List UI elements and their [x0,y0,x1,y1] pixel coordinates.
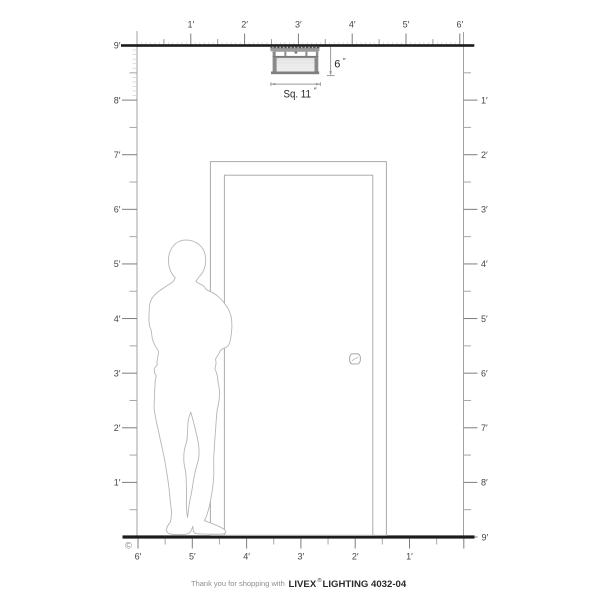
svg-text:9′: 9′ [482,533,489,543]
svg-text:7′: 7′ [114,150,121,160]
svg-text:9′: 9′ [114,41,121,51]
svg-text:®: ® [318,577,322,584]
svg-text:4′: 4′ [243,552,250,562]
svg-text:3′: 3′ [295,20,302,30]
svg-text:2′: 2′ [352,552,359,562]
svg-text:3′: 3′ [481,205,488,215]
svg-text:2′: 2′ [114,423,121,433]
svg-text:1′: 1′ [114,478,121,488]
svg-text:″: ″ [314,86,317,95]
svg-text:4′: 4′ [114,314,121,324]
svg-text:6′: 6′ [456,20,463,30]
svg-text:8′: 8′ [114,95,121,105]
svg-text:4′: 4′ [481,259,488,269]
svg-text:7′: 7′ [481,423,488,433]
svg-text:Sq. 11: Sq. 11 [283,89,311,101]
svg-text:3′: 3′ [298,552,305,562]
svg-text:2′: 2′ [241,20,248,30]
svg-text:5′: 5′ [189,552,196,562]
svg-text:5′: 5′ [403,20,410,30]
svg-text:2′: 2′ [481,150,488,160]
svg-text:©: © [125,541,132,552]
svg-text:6′: 6′ [481,368,488,378]
svg-text:LIVEX: LIVEX [289,579,317,590]
svg-text:3′: 3′ [114,368,121,378]
svg-text:1′: 1′ [406,552,413,562]
svg-text:5′: 5′ [114,259,121,269]
svg-text:1′: 1′ [481,95,488,105]
svg-text:6′: 6′ [135,552,142,562]
svg-text:6: 6 [334,58,340,70]
svg-text:LIGHTING 4032-04: LIGHTING 4032-04 [323,579,407,590]
svg-text:8′: 8′ [481,478,488,488]
svg-text:6′: 6′ [114,205,121,215]
svg-text:″: ″ [343,56,346,65]
svg-text:4′: 4′ [349,20,356,30]
svg-text:5′: 5′ [481,314,488,324]
svg-text:1′: 1′ [187,20,194,30]
svg-text:Thank you for shopping with: Thank you for shopping with [191,579,285,588]
